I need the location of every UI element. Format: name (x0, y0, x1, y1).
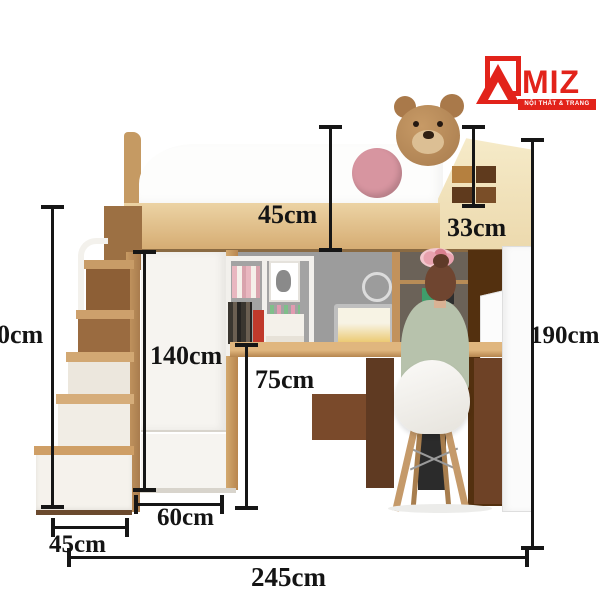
logo-tagline: NỘI THẤT & TRANG TRÍ (518, 99, 596, 110)
right-cabinet-door (502, 246, 532, 512)
dim-label-left-partial: 0cm (0, 322, 43, 348)
person-hair-bun (433, 254, 449, 268)
desk-books-stack (228, 302, 252, 344)
organizer-pens (270, 305, 300, 314)
person-hair (425, 263, 456, 301)
dim-label-desk-depth: 60cm (157, 505, 214, 530)
stair-step-1-tread (84, 260, 134, 269)
teddy-bear-eye-left (413, 121, 419, 127)
hutch-left-frame (392, 252, 400, 344)
wardrobe-drawer (141, 434, 226, 488)
wall-decor-circle (362, 272, 392, 302)
shelf-books-row (232, 266, 260, 298)
red-pen-cup (253, 310, 264, 344)
dim-line-245 (68, 556, 528, 559)
shelf-picture-sketch (276, 270, 291, 292)
product-dimension-image: 45cm 33cm 0cm 140cm 75cm 190cm 60cm 45cm… (0, 0, 600, 600)
dim-label-overall-width: 245cm (251, 564, 326, 591)
house-window-bottom-right (476, 187, 496, 203)
amiz-logo: MIZ NỘI THẤT & TRANG TRÍ (452, 50, 597, 112)
stair-step-2-tread (76, 310, 134, 319)
dim-line-33 (472, 127, 475, 206)
dim-line-140 (143, 252, 146, 490)
dim-line-45-bottom (52, 526, 128, 529)
dim-label-overall-height: 190cm (530, 323, 599, 348)
dim-label-desk-height: 75cm (255, 367, 314, 393)
desk-organizer (266, 314, 304, 344)
teddy-bear-nose (423, 131, 434, 139)
dim-line-left-partial (51, 207, 54, 507)
dim-label-wardrobe-height: 140cm (150, 343, 222, 369)
logo-brand-text: MIZ (522, 66, 580, 98)
dim-line-45-top (329, 127, 332, 250)
house-window-top-left (452, 166, 472, 183)
laptop-display (338, 308, 390, 342)
stair-step-4-riser (58, 404, 130, 448)
dim-label-stair-width: 45cm (49, 532, 106, 557)
dim-label-upper-bunk-height: 45cm (258, 202, 317, 228)
under-desk-panel-left (312, 394, 374, 440)
pink-circle-decor (352, 148, 402, 198)
chair-shell (394, 360, 470, 434)
desk-right-leg-panel (474, 358, 502, 504)
dim-line-75 (245, 345, 248, 508)
stair-bottom-drawer-top (34, 446, 134, 455)
stair-step-4-tread (56, 394, 134, 404)
house-window-bottom-left (452, 187, 472, 203)
house-window-top-right (476, 166, 496, 183)
dim-label-headboard-shelf: 33cm (447, 215, 506, 241)
stair-base-strip (36, 510, 132, 515)
stair-step-3-tread (66, 352, 134, 362)
teddy-bear-eye-right (437, 121, 443, 127)
desk-modesty-panel (366, 358, 394, 488)
floor-shadow-chair (388, 504, 492, 513)
wardrobe-door-seam (141, 430, 226, 432)
